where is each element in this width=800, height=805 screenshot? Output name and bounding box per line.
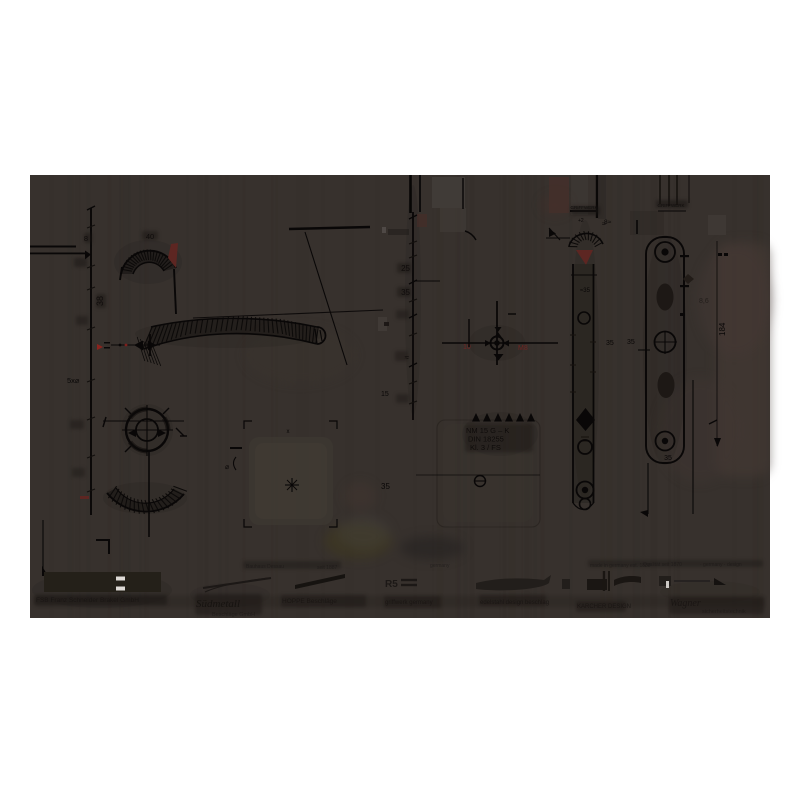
svg-text:35: 35	[606, 340, 614, 347]
svg-text:35: 35	[664, 455, 672, 462]
svg-text:35: 35	[627, 339, 635, 346]
svg-text:≈35: ≈35	[580, 288, 591, 294]
svg-text:R5: R5	[385, 579, 398, 590]
svg-text:5x⌀: 5x⌀	[67, 376, 80, 385]
svg-text:184: 184	[718, 322, 727, 336]
svg-text:35: 35	[381, 482, 390, 491]
svg-text:≈: ≈	[602, 221, 606, 228]
svg-text:⌀: ⌀	[225, 464, 229, 471]
svg-text:M8: M8	[518, 345, 528, 352]
svg-text:+2: +2	[578, 218, 584, 224]
svg-text:x: x	[287, 429, 290, 435]
svg-text:germany: germany	[430, 563, 450, 569]
svg-text:15: 15	[381, 391, 389, 398]
svg-text:8,6: 8,6	[699, 298, 709, 305]
